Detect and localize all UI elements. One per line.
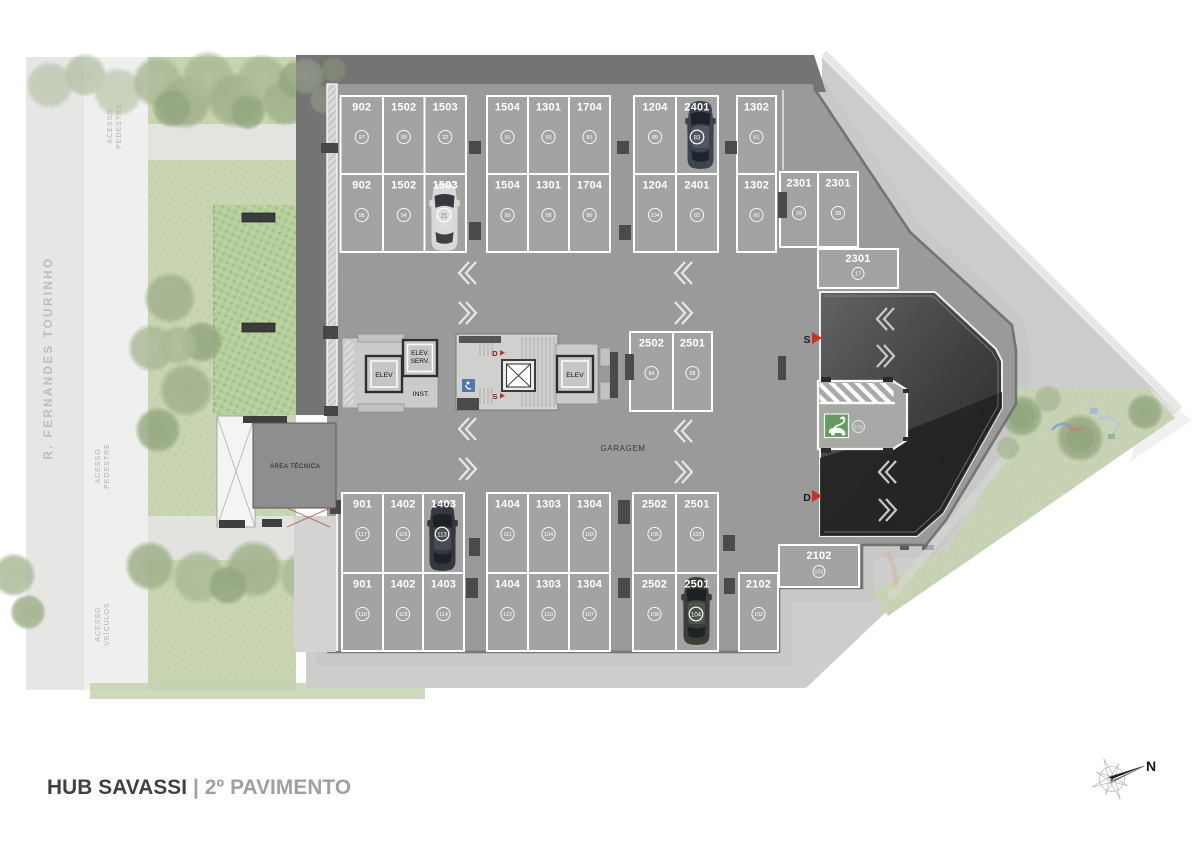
svg-text:94: 94 <box>401 213 407 219</box>
svg-text:ELEV: ELEV <box>375 372 393 379</box>
svg-text:901: 901 <box>353 499 372 511</box>
svg-text:105: 105 <box>650 532 659 538</box>
svg-text:108: 108 <box>650 612 659 618</box>
svg-text:2502: 2502 <box>639 338 664 350</box>
svg-text:1502: 1502 <box>391 180 416 192</box>
svg-text:83: 83 <box>694 136 701 142</box>
svg-text:97: 97 <box>359 135 365 141</box>
svg-text:D: D <box>492 349 498 358</box>
svg-text:116: 116 <box>358 612 367 618</box>
svg-text:60: 60 <box>753 213 759 219</box>
svg-text:1302: 1302 <box>744 102 769 114</box>
svg-text:111: 111 <box>503 532 511 538</box>
svg-text:104: 104 <box>691 613 702 619</box>
svg-text:1504: 1504 <box>495 180 521 192</box>
svg-text:2501: 2501 <box>684 579 709 591</box>
svg-text:17: 17 <box>855 272 861 278</box>
svg-text:29: 29 <box>796 211 802 217</box>
svg-text:ELEV.: ELEV. <box>411 350 429 357</box>
svg-text:1204: 1204 <box>642 180 668 192</box>
svg-text:114: 114 <box>439 612 448 618</box>
svg-text:1303: 1303 <box>536 499 561 511</box>
svg-text:101: 101 <box>814 570 823 576</box>
svg-text:81: 81 <box>586 135 592 141</box>
svg-text:103: 103 <box>692 532 701 538</box>
svg-text:INST.: INST. <box>413 391 430 398</box>
svg-text:96: 96 <box>359 213 365 219</box>
svg-text:88: 88 <box>689 371 695 377</box>
svg-text:2301: 2301 <box>825 178 850 190</box>
svg-text:104: 104 <box>650 213 659 219</box>
svg-text:2301: 2301 <box>786 178 811 190</box>
svg-text:1204: 1204 <box>642 102 668 114</box>
svg-text:1704: 1704 <box>577 102 603 114</box>
svg-text:1304: 1304 <box>577 579 603 591</box>
svg-text:ACESSO: ACESSO <box>107 108 114 143</box>
svg-text:90: 90 <box>504 213 510 219</box>
svg-text:2102: 2102 <box>806 550 831 562</box>
svg-text:102: 102 <box>754 612 763 618</box>
svg-text:2301: 2301 <box>845 253 870 265</box>
svg-text:1503: 1503 <box>433 180 458 192</box>
svg-text:PEDESTRE: PEDESTRE <box>116 103 123 149</box>
svg-text:115: 115 <box>399 532 408 538</box>
svg-text:N: N <box>1146 758 1156 774</box>
svg-text:ACESSO: ACESSO <box>95 448 102 483</box>
svg-text:103: 103 <box>585 532 594 538</box>
svg-text:107: 107 <box>585 612 594 618</box>
svg-text:1402: 1402 <box>390 499 415 511</box>
svg-text:95: 95 <box>401 135 407 141</box>
svg-text:2501: 2501 <box>684 499 709 511</box>
svg-text:1403: 1403 <box>431 499 456 511</box>
svg-text:1503: 1503 <box>433 102 458 114</box>
svg-text:D: D <box>803 492 811 504</box>
svg-text:901: 901 <box>353 579 372 591</box>
svg-text:118: 118 <box>399 612 408 618</box>
svg-text:HUB SAVASSI | 2º PAVIMENTO: HUB SAVASSI | 2º PAVIMENTO <box>47 776 351 799</box>
svg-text:28: 28 <box>835 211 841 217</box>
svg-text:106: 106 <box>854 425 863 431</box>
svg-text:SERV.: SERV. <box>411 358 430 365</box>
svg-text:1302: 1302 <box>744 180 769 192</box>
svg-text:VEÍCULOS: VEÍCULOS <box>102 602 111 645</box>
svg-text:82: 82 <box>694 213 700 219</box>
svg-text:1404: 1404 <box>495 579 521 591</box>
svg-text:1303: 1303 <box>536 579 561 591</box>
svg-text:S: S <box>492 392 497 401</box>
svg-text:ÁREA TÉCNICA: ÁREA TÉCNICA <box>270 461 321 470</box>
svg-text:21: 21 <box>441 214 448 220</box>
svg-text:1404: 1404 <box>495 499 521 511</box>
svg-text:R. FERNANDES TOURINHO: R. FERNANDES TOURINHO <box>43 256 55 459</box>
svg-text:93: 93 <box>545 135 551 141</box>
svg-text:1301: 1301 <box>536 102 561 114</box>
svg-text:61: 61 <box>753 135 759 141</box>
svg-text:88: 88 <box>545 213 551 219</box>
svg-text:112: 112 <box>503 612 512 618</box>
svg-text:1502: 1502 <box>391 102 416 114</box>
svg-text:ACESSO: ACESSO <box>95 606 102 641</box>
svg-text:S: S <box>803 334 810 346</box>
svg-text:1704: 1704 <box>577 180 603 192</box>
svg-text:1402: 1402 <box>390 579 415 591</box>
svg-text:86: 86 <box>586 213 592 219</box>
svg-text:2401: 2401 <box>684 102 709 114</box>
svg-text:1504: 1504 <box>495 102 521 114</box>
svg-text:2502: 2502 <box>642 499 667 511</box>
svg-text:902: 902 <box>352 180 371 192</box>
svg-text:22: 22 <box>442 135 448 141</box>
svg-text:1301: 1301 <box>536 180 561 192</box>
svg-text:84: 84 <box>648 371 654 377</box>
svg-text:104: 104 <box>544 532 553 538</box>
svg-text:902: 902 <box>352 102 371 114</box>
svg-text:110: 110 <box>544 612 553 618</box>
svg-text:PEDESTRE: PEDESTRE <box>104 443 111 489</box>
svg-text:117: 117 <box>358 532 367 538</box>
svg-text:2501: 2501 <box>680 338 705 350</box>
svg-text:2401: 2401 <box>684 180 709 192</box>
svg-text:ELEV: ELEV <box>566 372 584 379</box>
svg-text:1304: 1304 <box>577 499 603 511</box>
svg-text:2502: 2502 <box>642 579 667 591</box>
svg-text:2102: 2102 <box>746 579 771 591</box>
svg-text:113: 113 <box>437 533 447 539</box>
svg-text:91: 91 <box>504 135 510 141</box>
svg-text:1403: 1403 <box>431 579 456 591</box>
svg-text:GARAGEM: GARAGEM <box>600 444 645 453</box>
svg-text:85: 85 <box>652 135 658 141</box>
